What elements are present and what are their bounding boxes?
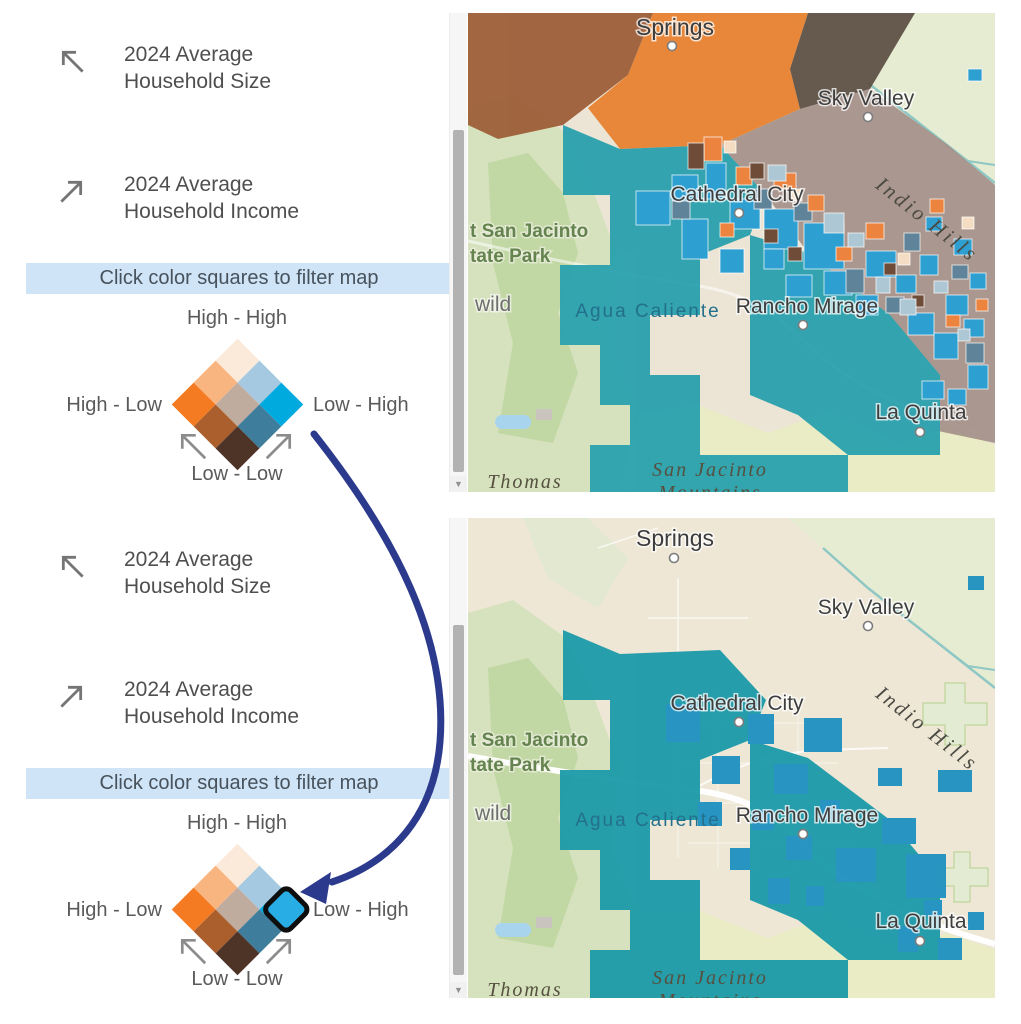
- city-marker: [670, 554, 679, 563]
- arrow-up-right-icon: [56, 175, 88, 207]
- page: 2024 AverageHousehold Size 2024 AverageH…: [0, 0, 1021, 1024]
- svg-text:Mountains: Mountains: [657, 990, 762, 998]
- svg-text:Thomas: Thomas: [487, 979, 562, 998]
- svg-text:Cathedral City: Cathedral City: [670, 692, 804, 715]
- svg-text:La Quinta: La Quinta: [875, 910, 966, 933]
- city-marker: [916, 937, 925, 946]
- svg-text:tate Park: tate Park: [470, 755, 551, 776]
- legend-label-low-low: Low - Low: [191, 968, 282, 991]
- scrollbar-down-button[interactable]: ▼: [450, 476, 467, 492]
- svg-text:Cathedral City: Cathedral City: [670, 183, 804, 206]
- variable-income-row: 2024 AverageHousehold Income: [56, 171, 299, 225]
- legend-panel-top: 2024 AverageHousehold Size 2024 AverageH…: [0, 13, 452, 493]
- arrow-up-left-icon: [56, 45, 88, 77]
- arrow-up-right-icon: [262, 425, 300, 463]
- svg-text:Rancho Mirage: Rancho Mirage: [736, 804, 878, 827]
- svg-text:Sky Valley: Sky Valley: [818, 87, 915, 110]
- svg-text:San Jacinto: San Jacinto: [652, 967, 768, 989]
- svg-text:San Jacinto: San Jacinto: [652, 459, 768, 481]
- map-filtered[interactable]: Springs Sky Valley Cathedral City Indio …: [468, 518, 995, 998]
- svg-text:Springs: Springs: [636, 525, 714, 551]
- svg-text:Mountains: Mountains: [657, 482, 762, 492]
- legend-panel-bottom: 2024 AverageHousehold Size 2024 AverageH…: [0, 518, 452, 998]
- arrow-up-right-icon: [262, 930, 300, 968]
- svg-text:Springs: Springs: [636, 14, 714, 40]
- scrollbar[interactable]: ▼: [449, 518, 467, 998]
- legend-label-high-low: High - Low: [66, 394, 162, 417]
- svg-text:Thomas: Thomas: [487, 471, 562, 492]
- filter-hint-banner: Click color squares to filter map: [26, 263, 452, 294]
- city-marker: [799, 321, 808, 330]
- arrow-up-right-icon: [56, 680, 88, 712]
- city-marker: [668, 42, 677, 51]
- legend-label-low-high: Low - High: [313, 899, 409, 922]
- svg-text:Agua Caliente: Agua Caliente: [575, 301, 720, 322]
- city-marker: [916, 428, 925, 437]
- svg-text:t San Jacinto: t San Jacinto: [470, 221, 588, 242]
- svg-text:Sky Valley: Sky Valley: [818, 596, 915, 619]
- legend-label-high-high: High - High: [187, 812, 287, 835]
- city-marker: [799, 830, 808, 839]
- svg-text:t San Jacinto: t San Jacinto: [470, 730, 588, 751]
- map-unfiltered[interactable]: Springs Sky Valley Cathedral City Indio …: [468, 13, 995, 492]
- scrollbar[interactable]: ▼: [449, 13, 467, 492]
- city-marker: [735, 718, 744, 727]
- svg-text:wild: wild: [474, 802, 511, 825]
- city-marker: [864, 113, 873, 122]
- scrollbar-thumb[interactable]: [453, 625, 464, 975]
- svg-text:Rancho Mirage: Rancho Mirage: [736, 295, 878, 318]
- arrow-up-left-icon: [172, 930, 210, 968]
- svg-text:wild: wild: [474, 293, 511, 316]
- variable-size-row: 2024 AverageHousehold Size: [56, 41, 271, 95]
- scrollbar-down-button[interactable]: ▼: [450, 982, 467, 998]
- variable-income-label: 2024 AverageHousehold Income: [124, 676, 299, 730]
- svg-text:La Quinta: La Quinta: [875, 401, 966, 424]
- variable-size-label: 2024 AverageHousehold Size: [124, 41, 271, 95]
- legend-label-high-low: High - Low: [66, 899, 162, 922]
- variable-size-row: 2024 AverageHousehold Size: [56, 546, 271, 600]
- svg-text:Agua Caliente: Agua Caliente: [575, 810, 720, 831]
- arrow-up-left-icon: [56, 550, 88, 582]
- city-marker: [735, 209, 744, 218]
- legend-label-low-high: Low - High: [313, 394, 409, 417]
- legend-label-low-low: Low - Low: [191, 463, 282, 486]
- arrow-up-left-icon: [172, 425, 210, 463]
- city-marker: [864, 622, 873, 631]
- variable-size-label: 2024 AverageHousehold Size: [124, 546, 271, 600]
- variable-income-label: 2024 AverageHousehold Income: [124, 171, 299, 225]
- scrollbar-thumb[interactable]: [453, 130, 464, 472]
- filter-hint-banner: Click color squares to filter map: [26, 768, 452, 799]
- variable-income-row: 2024 AverageHousehold Income: [56, 676, 299, 730]
- svg-text:tate Park: tate Park: [470, 246, 551, 267]
- legend-label-high-high: High - High: [187, 307, 287, 330]
